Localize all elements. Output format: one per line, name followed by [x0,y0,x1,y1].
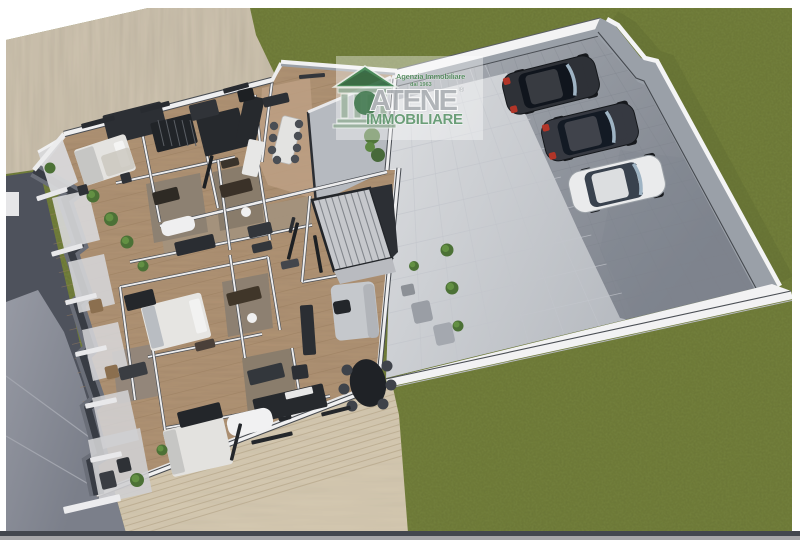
svg-text:IMMOBILIARE: IMMOBILIARE [366,111,463,128]
svg-text:®: ® [459,86,465,94]
svg-text:Agenzia Immobiliare: Agenzia Immobiliare [396,72,465,81]
